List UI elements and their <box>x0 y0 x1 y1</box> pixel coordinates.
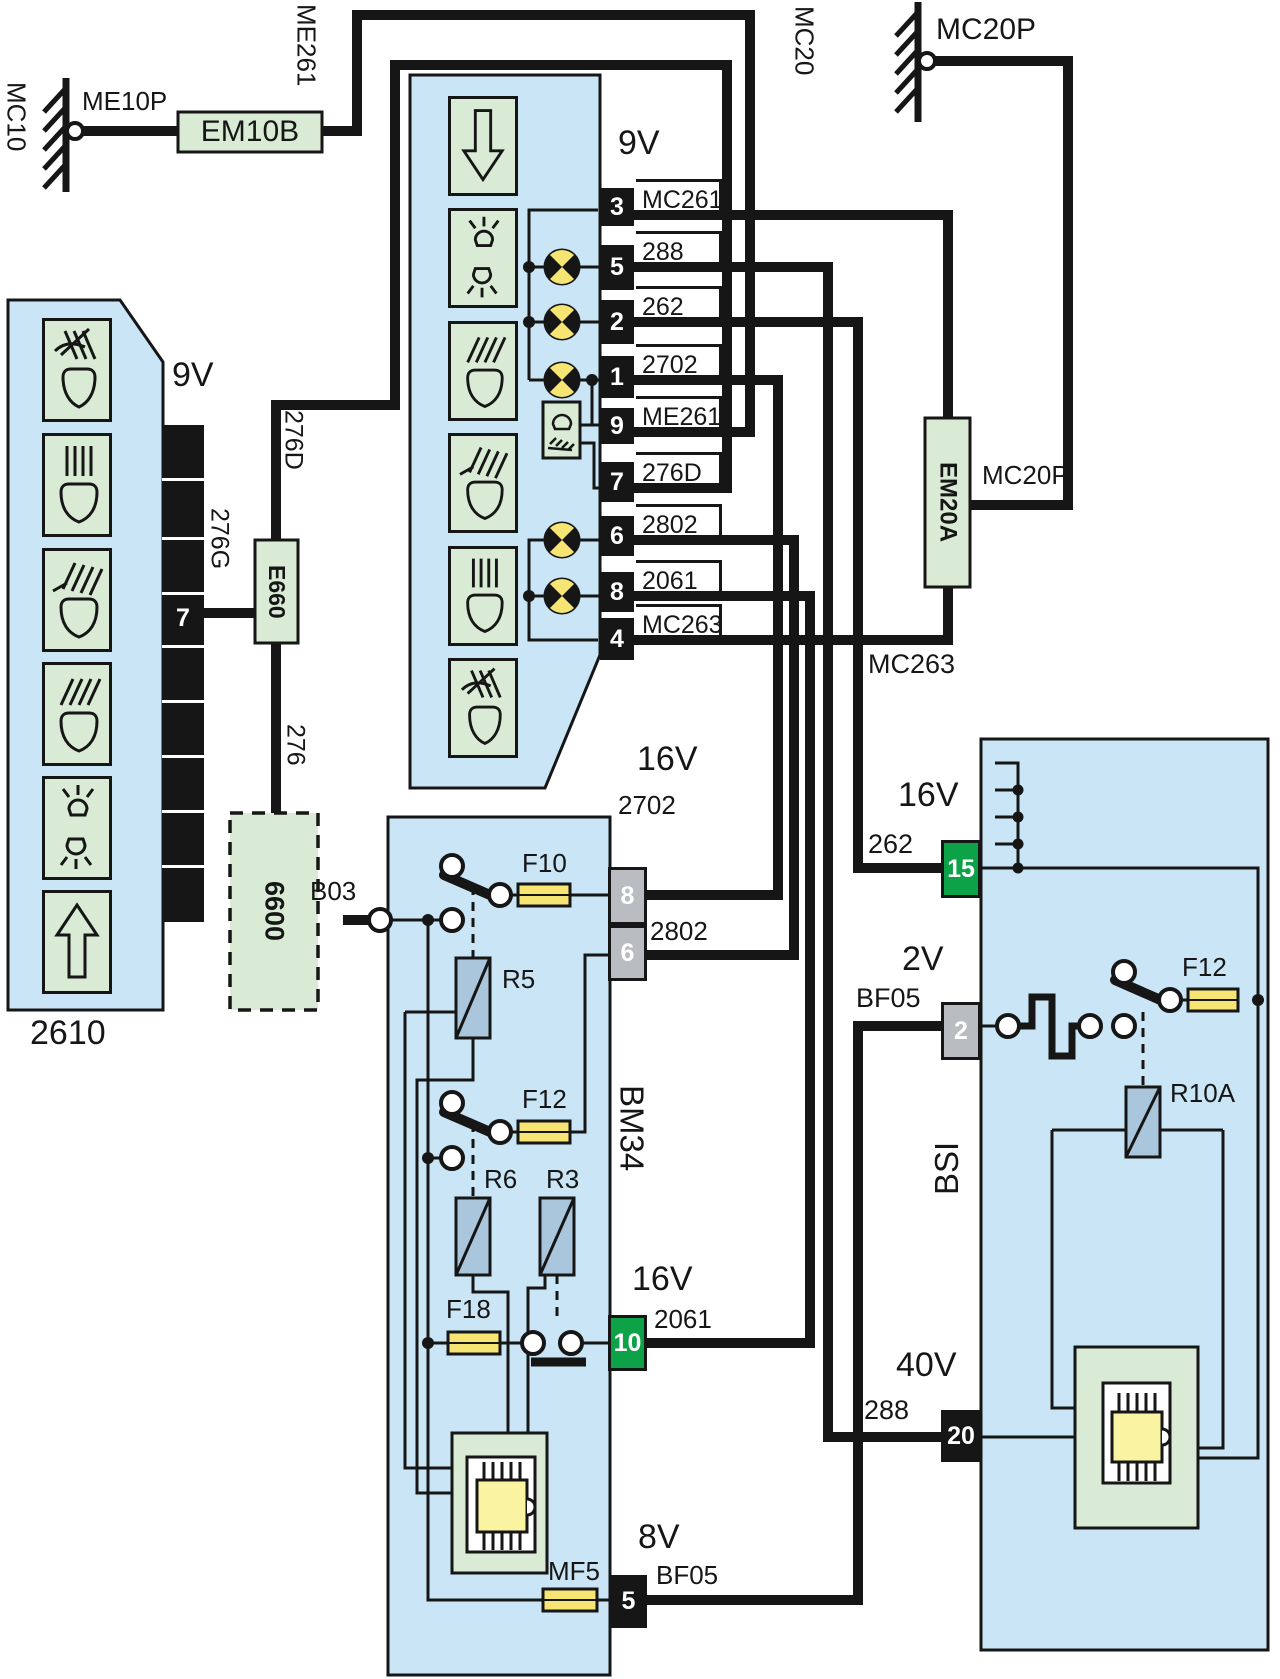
fuse-label-f10: F10 <box>522 850 567 877</box>
unit-label-bm34: BM34 <box>614 1085 649 1290</box>
arrow-down-icon <box>448 96 518 196</box>
position-lamps-icon <box>42 776 112 880</box>
relay-r3 <box>540 1198 574 1275</box>
wire-label-bf05-bsi: BF05 <box>856 984 921 1012</box>
fuse-mf5 <box>543 1589 597 1611</box>
fuse-label-f12-bsi: F12 <box>1182 954 1227 981</box>
wire-label-mc263: MC263 <box>636 604 722 640</box>
bm34-chip-module <box>452 1433 547 1573</box>
wire-label-2061: 2061 <box>636 560 722 596</box>
pin-lamp-1: 1 <box>600 356 634 398</box>
connector-gap <box>162 537 204 540</box>
connector-strip-2610: 7 <box>162 425 204 922</box>
ground-mc10 <box>44 78 66 192</box>
side-marker-lamp-icon <box>543 402 580 458</box>
splice-label-em20a: EM20A <box>925 418 970 587</box>
pin-bm34-5: 5 <box>610 1575 647 1628</box>
wire-label-bf05-bm34: BF05 <box>656 1562 718 1589</box>
fuse-f18 <box>448 1332 500 1354</box>
unit-label-2610: 2610 <box>30 1016 106 1052</box>
high-beam-icon <box>42 433 112 537</box>
connector-gap <box>162 700 204 703</box>
unit-label-bsi: BSI <box>930 1085 965 1195</box>
pin-2610-7: 7 <box>162 592 204 645</box>
wire-label-262-bsi: 262 <box>868 830 913 858</box>
chip-icon <box>477 1480 527 1532</box>
relay-label-r6: R6 <box>484 1166 517 1193</box>
voltage-label-40v: 40V <box>896 1348 957 1384</box>
rear-fog-icon <box>448 658 518 758</box>
wire-label-2802-bm34: 2802 <box>650 918 708 945</box>
splice-label-em10b: EM10B <box>178 112 322 152</box>
voltage-label-9v-center: 9V <box>618 126 660 162</box>
wire-label-2702-bm34: 2702 <box>618 792 676 819</box>
voltage-label-16v-pin15: 16V <box>898 778 959 814</box>
fuse-f12-bsi <box>1188 989 1238 1011</box>
wire-label-288: 288 <box>636 231 722 267</box>
pin-bm34-10: 10 <box>608 1315 647 1371</box>
relay-label-r3: R3 <box>546 1166 579 1193</box>
front-fog-icon <box>448 433 518 533</box>
connector-gap <box>162 755 204 758</box>
front-fog-icon <box>42 548 112 652</box>
relay-r10a <box>1126 1087 1160 1157</box>
connector-gap <box>162 810 204 813</box>
pin-bsi-2: 2 <box>941 1002 981 1060</box>
unit-label-6600: 6600 <box>230 813 318 1010</box>
wire-label-2061-bm34: 2061 <box>654 1306 712 1333</box>
wire-label-mc20p-mid: MC20P <box>982 462 1069 489</box>
pin-lamp-3: 3 <box>600 188 634 226</box>
relay-label-r5: R5 <box>502 966 535 993</box>
bulb-icon <box>545 305 579 339</box>
voltage-label-2v: 2V <box>902 942 944 978</box>
wire-label-mc20p-top: MC20P <box>936 14 1036 46</box>
connector-gap <box>162 865 204 868</box>
bulb-icon <box>545 523 579 557</box>
wire-label-2802: 2802 <box>636 504 722 540</box>
bulb-icon <box>545 250 579 284</box>
relay-label-r10a: R10A <box>1170 1080 1235 1107</box>
wire-label-276: 276 <box>282 724 308 790</box>
voltage-label-8v: 8V <box>638 1520 680 1556</box>
position-lamps-icon <box>448 208 518 308</box>
pin-lamp-5: 5 <box>600 245 634 290</box>
ground-label-mc20: MC20 <box>790 6 817 106</box>
wire-label-b03: B03 <box>310 878 356 905</box>
wire-label-me261-riser: ME261 <box>292 4 319 114</box>
voltage-label-16v-pin8: 16V <box>637 742 698 778</box>
wire-label-2702: 2702 <box>636 344 722 380</box>
fuse-f12 <box>518 1121 570 1143</box>
connector-gap <box>162 478 204 481</box>
wire-label-262: 262 <box>636 286 722 322</box>
wire-label-me10p: ME10P <box>82 88 167 115</box>
wiring-diagram-page: 7 <box>0 0 1280 1679</box>
voltage-label-9v-left: 9V <box>172 358 214 394</box>
wire-label-276d: 276D <box>636 452 722 488</box>
connector-gap <box>162 645 204 648</box>
pin-bsi-15: 15 <box>941 840 981 898</box>
wire-label-mc261: MC261 <box>636 179 722 215</box>
wire-label-mc263-mid: MC263 <box>868 650 955 678</box>
wire-2061 <box>634 596 810 1343</box>
pin-lamp-6: 6 <box>600 516 634 556</box>
rear-fog-icon <box>42 318 112 422</box>
low-beam-icon <box>448 321 518 421</box>
pin-bsi-20: 20 <box>941 1410 981 1462</box>
high-beam-icon <box>448 546 518 646</box>
ground-mc20 <box>896 2 918 122</box>
fuse-f10 <box>518 884 570 906</box>
pin-bm34-8: 8 <box>608 867 647 925</box>
ground-label-mc10: MC10 <box>2 82 29 197</box>
pin-lamp-8: 8 <box>600 572 634 612</box>
fuse-label-f18: F18 <box>446 1296 491 1323</box>
relay-r5 <box>456 958 490 1038</box>
pin-lamp-7: 7 <box>600 462 634 502</box>
wire-label-me261: ME261 <box>636 396 722 432</box>
relay-r6 <box>456 1198 490 1275</box>
bulb-icon <box>545 579 579 613</box>
pin-bm34-6: 6 <box>608 925 647 981</box>
pin-lamp-4: 4 <box>600 618 634 660</box>
fuse-label-mf5: MF5 <box>548 1558 600 1585</box>
wire-label-276g: 276G <box>206 508 232 603</box>
bsi-chip-module <box>1075 1347 1198 1528</box>
bulb-icon <box>545 363 579 397</box>
arrow-up-icon <box>42 890 112 994</box>
wire-label-288-bsi: 288 <box>864 1396 909 1424</box>
splice-label-e660: E660 <box>255 540 298 643</box>
fuse-label-f12-bm34: F12 <box>522 1086 567 1113</box>
chip-icon <box>1112 1412 1162 1462</box>
low-beam-icon <box>42 662 112 766</box>
pin-lamp-2: 2 <box>600 300 634 344</box>
pin-lamp-9: 9 <box>600 408 634 444</box>
wire-label-276d-left: 276D <box>280 410 306 510</box>
